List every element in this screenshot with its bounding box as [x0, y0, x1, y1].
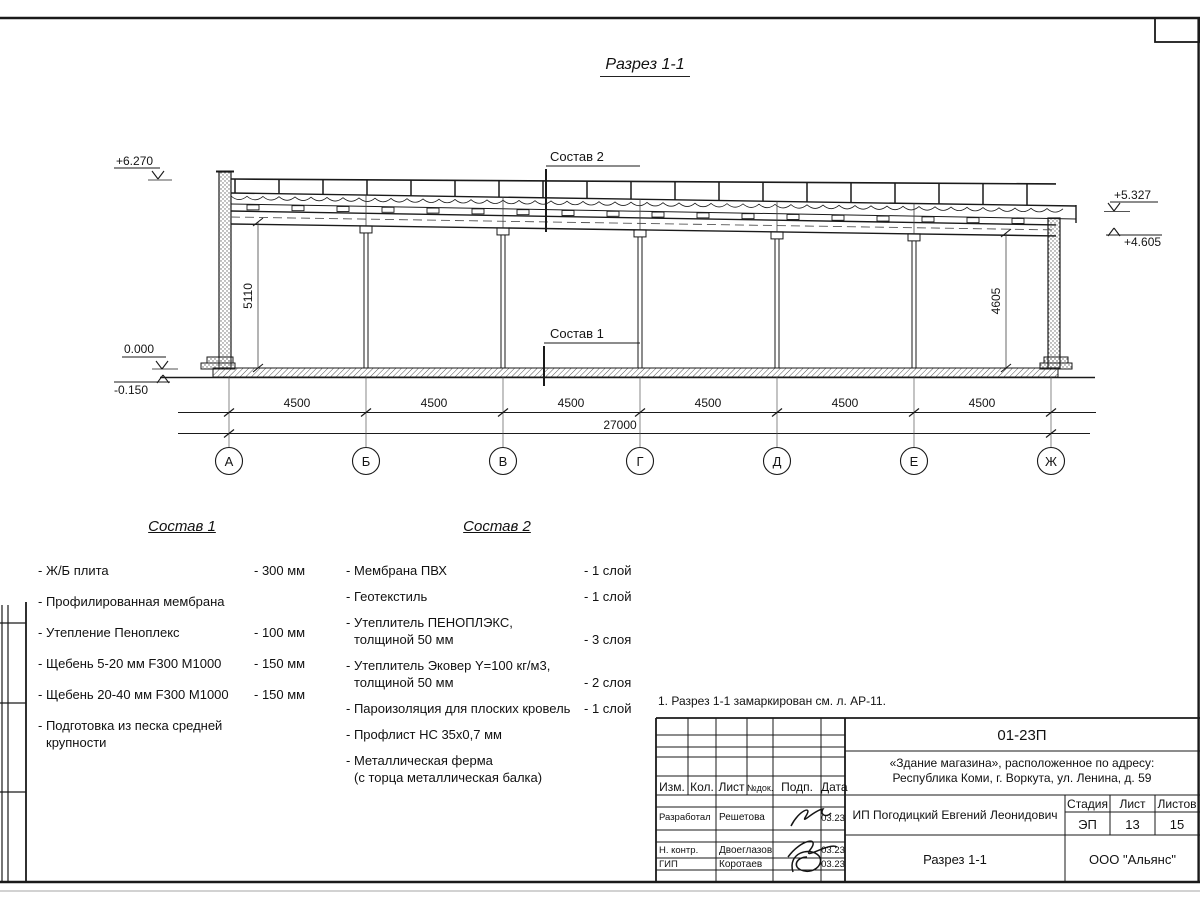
axis-label-d: Д [773, 454, 782, 469]
tb-sheet-value: 13 [1110, 817, 1155, 832]
tb-sheets-value: 15 [1155, 817, 1199, 832]
dim-span-2: 4500 [421, 396, 448, 410]
tb-date-developer: 03.23 [821, 813, 845, 824]
axis-bubbles: А Б В Г Д Е Ж [216, 448, 1065, 475]
list-item: - Металлическая ферма(с торца металличес… [346, 752, 648, 786]
sheet-title: Разрез 1-1 [545, 56, 745, 77]
floor-slab [213, 368, 1058, 377]
axis-label-e: Е [910, 454, 919, 469]
tb-header-podp: Подп. [773, 780, 821, 794]
list-item: - Пароизоляция для плоских кровель- 1 сл… [346, 700, 648, 717]
tb-doc-number: 01-23П [846, 727, 1198, 744]
tb-name-developer: Решетова [719, 812, 765, 823]
tb-date-gip: 03.23 [821, 859, 845, 870]
dim-span-5: 4500 [832, 396, 859, 410]
axis-label-a: А [225, 454, 234, 469]
axis-label-v: В [499, 454, 508, 469]
dim-span-1: 4500 [284, 396, 311, 410]
list-title: Состав 2 [346, 518, 648, 535]
elevation-roof-low: +4.605 [1124, 235, 1161, 249]
tb-stage-label: Стадия [1065, 797, 1110, 811]
axis-label-b: Б [362, 454, 371, 469]
dim-span-3: 4500 [558, 396, 585, 410]
list-item: - Геотекстиль- 1 слой [346, 588, 648, 605]
list-item: - Профилированная мембрана [38, 593, 326, 610]
tb-date-ncontrol: 03.23 [821, 845, 845, 856]
drawing-sheet: 4500 4500 4500 4500 4500 4500 27000 5110… [0, 0, 1200, 900]
elevation-parapet: +6.270 [116, 154, 153, 168]
tb-drawing-name: Разрез 1-1 [846, 852, 1064, 867]
list-item: - Подготовка из песка среднейкрупности [38, 717, 326, 751]
tb-name-ncontrol: Двоеглазов [719, 845, 772, 856]
elevation-roof-high: +5.327 [1114, 188, 1151, 202]
tb-project-line1: «Здание магазина», расположенное по адре… [846, 756, 1198, 770]
floor-assembly-list: Состав 1 - Ж/Б плита- 300 мм - Профилиро… [38, 518, 326, 765]
dim-total: 27000 [603, 418, 637, 432]
list-item: - Ж/Б плита- 300 мм [38, 562, 326, 579]
tb-name-gip: Коротаев [719, 859, 762, 870]
tb-sheet-label: Лист [1110, 797, 1155, 811]
tb-header-ndok: №док. [747, 783, 773, 793]
tb-role-gip: ГИП [659, 859, 678, 870]
elevation-zero: 0.000 [124, 342, 154, 356]
tb-project-line2: Республика Коми, г. Воркута, ул. Ленина,… [846, 771, 1198, 785]
dim-height-left: 5110 [241, 283, 255, 309]
tb-client: ИП Погодицкий Евгений Леонидович [846, 808, 1064, 822]
list-title: Состав 1 [38, 518, 326, 535]
tb-company: ООО "Альянс" [1066, 852, 1199, 867]
callout-floor-assembly: Состав 1 [550, 326, 604, 341]
list-item: - Утепление Пеноплекс- 100 мм [38, 624, 326, 641]
elevation-floor: -0.150 [114, 383, 148, 397]
dim-span-4: 4500 [695, 396, 722, 410]
tb-role-ncontrol: Н. контр. [659, 845, 698, 856]
list-item: - Щебень 20-40 мм F300 М1000- 150 мм [38, 686, 326, 703]
list-item: - Профлист НС 35х0,7 мм [346, 726, 648, 743]
tb-header-list: Лист [716, 780, 747, 794]
list-item: - Мембрана ПВХ- 1 слой [346, 562, 648, 579]
axis-label-g: Г [636, 454, 643, 469]
sheet-note: 1. Разрез 1-1 замаркирован см. л. АР-11. [658, 694, 886, 708]
tb-role-developer: Разработал [659, 812, 711, 823]
tb-sheets-label: Листов [1155, 797, 1199, 811]
roof-assembly-list: Состав 2 - Мембрана ПВХ- 1 слой - Геотек… [346, 518, 648, 795]
list-item: - Утеплитель ПЕНОПЛЭКС,толщиной 50 мм- 3… [346, 614, 648, 648]
dim-span-6: 4500 [969, 396, 996, 410]
dim-height-right: 4605 [989, 287, 1003, 314]
list-item: - Утеплитель Эковер Y=100 кг/м3,толщиной… [346, 657, 648, 691]
right-wall [1048, 218, 1060, 368]
tb-header-data: Дата [821, 780, 845, 794]
tb-header-kol: Кол. [688, 780, 716, 794]
left-wall [219, 172, 231, 368]
tb-stage-value: ЭП [1065, 817, 1110, 832]
callout-roof-assembly: Состав 2 [550, 149, 604, 164]
axis-label-zh: Ж [1045, 454, 1057, 469]
tb-header-izm: Изм. [656, 780, 688, 794]
list-item: - Щебень 5-20 мм F300 М1000- 150 мм [38, 655, 326, 672]
